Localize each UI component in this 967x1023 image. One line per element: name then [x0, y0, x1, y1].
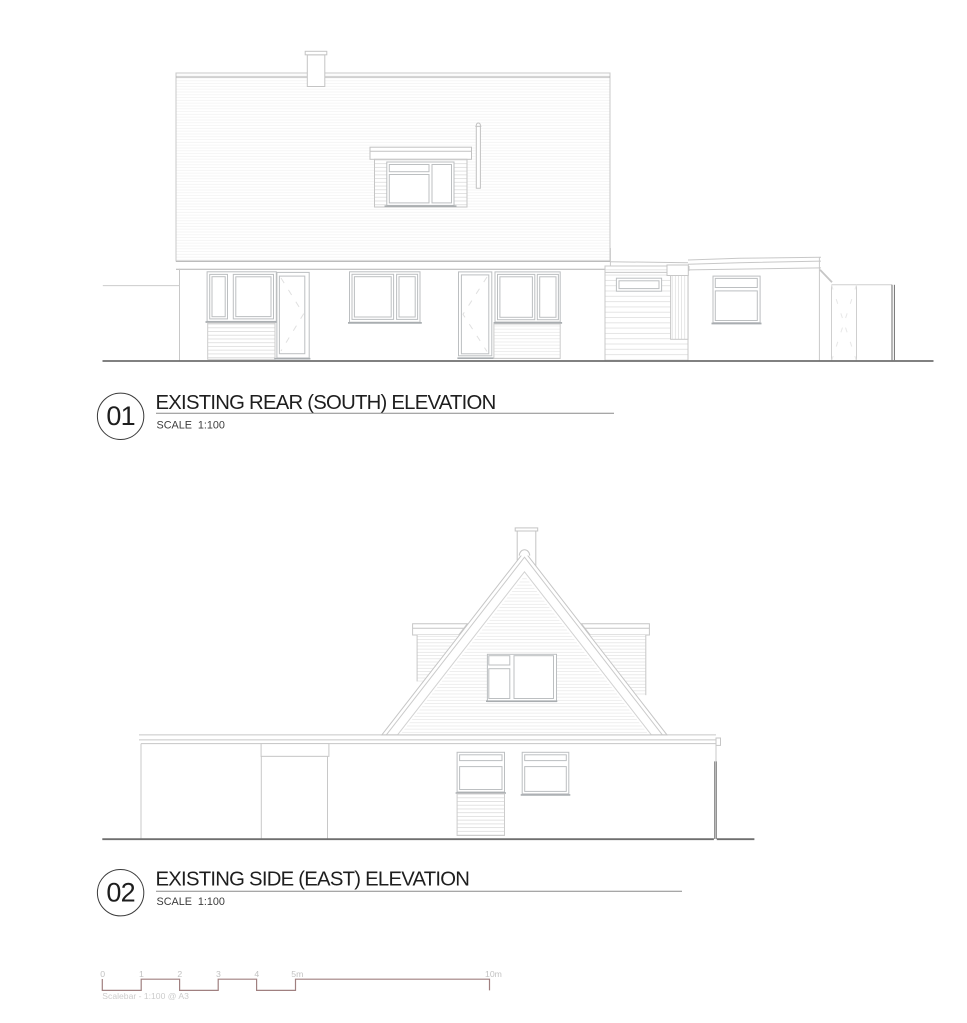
svg-text:2: 2: [177, 969, 182, 979]
svg-text:5m: 5m: [291, 969, 303, 979]
svg-text:02: 02: [106, 877, 134, 907]
svg-text:EXISTING SIDE (EAST) ELEVATION: EXISTING SIDE (EAST) ELEVATION: [156, 868, 470, 890]
svg-text:EXISTING REAR (SOUTH) ELEVATIO: EXISTING REAR (SOUTH) ELEVATION: [156, 392, 496, 414]
svg-text:10m: 10m: [485, 969, 502, 979]
svg-text:SCALE 1:100: SCALE 1:100: [157, 896, 225, 908]
svg-text:SCALE 1:100: SCALE 1:100: [157, 420, 225, 432]
svg-text:1: 1: [139, 969, 144, 979]
svg-text:3: 3: [216, 969, 221, 979]
svg-text:4: 4: [254, 969, 259, 979]
svg-text:Scalebar - 1:100 @ A3: Scalebar - 1:100 @ A3: [102, 991, 189, 1001]
svg-text:0: 0: [100, 969, 105, 979]
svg-text:01: 01: [106, 401, 134, 431]
